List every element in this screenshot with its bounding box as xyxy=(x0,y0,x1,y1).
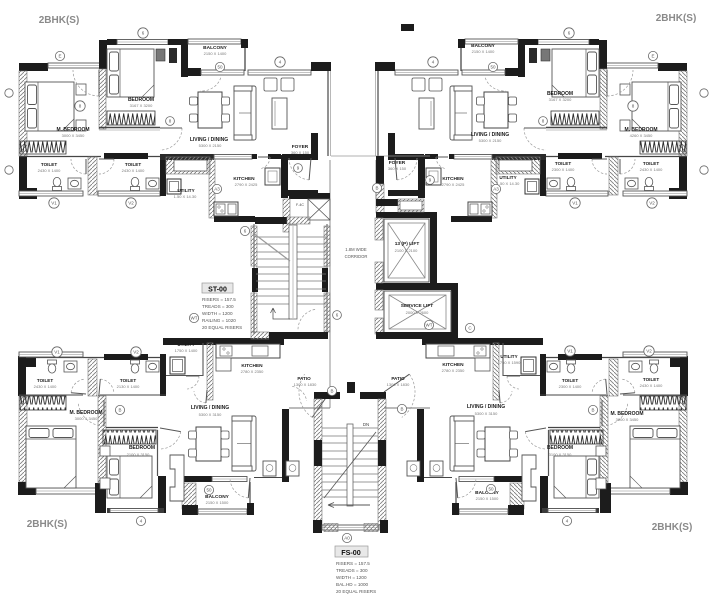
svg-text:2130 X 1400: 2130 X 1400 xyxy=(117,384,140,389)
svg-text:1.50 X 14.30: 1.50 X 14.30 xyxy=(174,194,197,199)
svg-text:F-4C: F-4C xyxy=(296,203,304,207)
svg-text:CORRIDOR: CORRIDOR xyxy=(345,254,368,259)
svg-text:3100 X 3150: 3100 X 3150 xyxy=(549,452,572,457)
svg-text:3167 X 3200: 3167 X 3200 xyxy=(130,103,153,108)
svg-text:2150 X 1400: 2150 X 1400 xyxy=(472,49,495,54)
svg-text:3000 X 3450: 3000 X 3450 xyxy=(75,416,98,421)
svg-text:360 X 150: 360 X 150 xyxy=(388,166,407,171)
svg-text:2430 X 1400: 2430 X 1400 xyxy=(38,168,61,173)
svg-text:2780 X 2350: 2780 X 2350 xyxy=(241,369,264,374)
svg-text:20 EQUAL RISERS: 20 EQUAL RISERS xyxy=(202,325,242,330)
svg-text:2150 X 1400: 2150 X 1400 xyxy=(204,51,227,56)
svg-text:2100 X 3150: 2100 X 3150 xyxy=(127,452,150,457)
svg-text:360 X 150: 360 X 150 xyxy=(291,150,310,155)
svg-text:V1: V1 xyxy=(572,201,578,206)
svg-text:1750 X 1400: 1750 X 1400 xyxy=(175,348,198,353)
svg-text:5300 X 2150: 5300 X 2150 xyxy=(479,138,502,143)
svg-text:2780 X 2350: 2780 X 2350 xyxy=(442,368,465,373)
svg-text:BEDROOM: BEDROOM xyxy=(547,445,573,451)
svg-text:3000 X 3450: 3000 X 3450 xyxy=(616,417,639,422)
svg-text:5300 X 3150: 5300 X 3150 xyxy=(199,412,222,417)
svg-text:2430 X 1400: 2430 X 1400 xyxy=(122,168,145,173)
svg-text:4260 X 3450: 4260 X 3450 xyxy=(630,133,653,138)
svg-text:UTILITY: UTILITY xyxy=(499,175,516,180)
svg-text:1300 X 1830: 1300 X 1830 xyxy=(294,382,317,387)
svg-text:V2: V2 xyxy=(649,201,655,206)
svg-text:2300 X 1400: 2300 X 1400 xyxy=(559,384,582,389)
svg-text:TOILET: TOILET xyxy=(643,377,659,382)
svg-text:RISERS = 157.5: RISERS = 157.5 xyxy=(202,297,236,302)
svg-text:ST-00: ST-00 xyxy=(208,287,227,294)
svg-text:E: E xyxy=(651,54,654,59)
svg-text:1300 X 1830: 1300 X 1830 xyxy=(387,382,410,387)
svg-text:LIVING / DINING: LIVING / DINING xyxy=(191,405,229,411)
svg-text:B: B xyxy=(591,408,594,413)
svg-text:2430 X 1400: 2430 X 1400 xyxy=(34,384,57,389)
svg-text:WIDTH = 1200: WIDTH = 1200 xyxy=(336,575,367,580)
svg-text:2BHK(S): 2BHK(S) xyxy=(656,13,697,24)
svg-text:2430 X 1400: 2430 X 1400 xyxy=(640,383,663,388)
svg-text:V1: V1 xyxy=(54,350,60,355)
svg-text:PATIO: PATIO xyxy=(391,376,405,381)
svg-text:TOILET: TOILET xyxy=(41,162,57,167)
svg-text:2BHK(S): 2BHK(S) xyxy=(39,15,80,26)
svg-text:2790 X 2425: 2790 X 2425 xyxy=(442,182,465,187)
svg-text:TOILET: TOILET xyxy=(120,378,136,383)
svg-text:50: 50 xyxy=(206,488,212,493)
svg-text:2790 X 2425: 2790 X 2425 xyxy=(235,182,258,187)
svg-text:13 (P) LIFT: 13 (P) LIFT xyxy=(395,241,420,247)
svg-text:1750 X 1590: 1750 X 1590 xyxy=(498,360,521,365)
svg-text:FS-00: FS-00 xyxy=(341,548,361,557)
svg-text:TREADS = 300: TREADS = 300 xyxy=(202,304,234,309)
svg-text:TOILET: TOILET xyxy=(125,162,141,167)
svg-text:V2: V2 xyxy=(133,350,139,355)
svg-text:50: 50 xyxy=(488,487,494,492)
svg-text:V1: V1 xyxy=(567,349,573,354)
svg-text:UTILITY: UTILITY xyxy=(500,354,517,359)
svg-text:B: B xyxy=(330,389,333,394)
svg-text:1.50 X 14.30: 1.50 X 14.30 xyxy=(497,181,520,186)
svg-text:2BHK(S): 2BHK(S) xyxy=(652,522,693,533)
svg-text:TREADS = 300: TREADS = 300 xyxy=(336,568,368,573)
svg-text:2000 X 2600: 2000 X 2600 xyxy=(406,310,429,315)
svg-text:WT: WT xyxy=(191,316,198,321)
svg-text:1.8M WIDE: 1.8M WIDE xyxy=(345,247,367,252)
svg-text:TOILET: TOILET xyxy=(643,161,659,166)
svg-text:UTILITY: UTILITY xyxy=(177,342,194,347)
svg-text:WT: WT xyxy=(426,323,433,328)
svg-text:2300 X 1400: 2300 X 1400 xyxy=(552,167,575,172)
svg-text:V2: V2 xyxy=(128,201,134,206)
svg-text:2150 X 1500: 2150 X 1500 xyxy=(206,500,229,505)
svg-text:RAILING = 1020: RAILING = 1020 xyxy=(202,318,236,323)
svg-text:20 EQUAL RISERS: 20 EQUAL RISERS xyxy=(336,589,376,594)
svg-text:B: B xyxy=(118,408,121,413)
svg-text:50: 50 xyxy=(490,65,496,70)
svg-text:E: E xyxy=(58,54,61,59)
svg-text:SERVICE LIFT: SERVICE LIFT xyxy=(401,303,433,309)
svg-text:5300 X 2150: 5300 X 2150 xyxy=(199,143,222,148)
svg-text:2430 X 1400: 2430 X 1400 xyxy=(640,167,663,172)
svg-text:TOILET: TOILET xyxy=(555,161,571,166)
svg-text:A3: A3 xyxy=(493,187,499,192)
svg-text:50: 50 xyxy=(217,65,223,70)
svg-text:TOILET: TOILET xyxy=(562,378,578,383)
svg-text:BEDROOM: BEDROOM xyxy=(129,445,155,451)
svg-text:A0: A0 xyxy=(344,536,350,541)
svg-text:5300 X 3150: 5300 X 3150 xyxy=(475,411,498,416)
svg-text:2150 X 1500: 2150 X 1500 xyxy=(476,496,499,501)
svg-text:V2: V2 xyxy=(646,349,652,354)
svg-text:TOILET: TOILET xyxy=(37,378,53,383)
svg-text:DN: DN xyxy=(363,422,369,427)
svg-text:3167 X 3200: 3167 X 3200 xyxy=(549,97,572,102)
svg-text:LIVING / DINING: LIVING / DINING xyxy=(467,404,505,410)
svg-text:B: B xyxy=(375,186,378,191)
svg-text:3000 X 3450: 3000 X 3450 xyxy=(62,133,85,138)
svg-text:BAL.HD = 1000: BAL.HD = 1000 xyxy=(336,582,368,587)
svg-text:UTILITY: UTILITY xyxy=(177,188,194,193)
svg-text:B: B xyxy=(400,407,403,412)
svg-text:V1: V1 xyxy=(51,201,57,206)
svg-text:RISERS = 157.5: RISERS = 157.5 xyxy=(336,561,370,566)
svg-text:WIDTH = 1200: WIDTH = 1200 xyxy=(202,311,233,316)
svg-text:PATIO: PATIO xyxy=(297,376,311,381)
svg-text:A3: A3 xyxy=(214,187,220,192)
svg-text:2100 X 2100: 2100 X 2100 xyxy=(395,248,418,253)
svg-text:2BHK(S): 2BHK(S) xyxy=(27,519,68,530)
